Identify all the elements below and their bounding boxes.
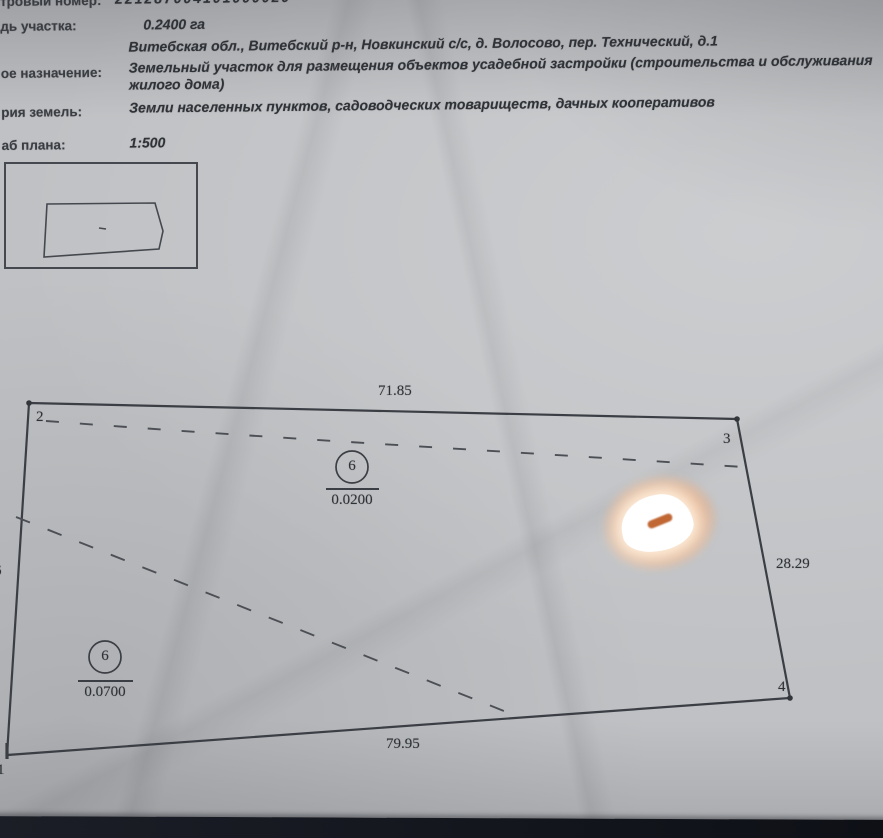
zone-a-code: 6 bbox=[344, 458, 360, 475]
corner-label-1: 1 bbox=[0, 762, 5, 779]
zone-b-code: 6 bbox=[97, 648, 113, 665]
photographed-land-plot-document: тровый номер: 221287004101000020 дь учас… bbox=[0, 0, 883, 838]
zone-a-area: 0.0200 bbox=[320, 492, 384, 509]
dimension-bottom: 79.95 bbox=[386, 736, 420, 753]
dimension-left-partial: 6 bbox=[0, 563, 2, 580]
table-edge bbox=[0, 816, 883, 838]
plan-drawing bbox=[0, 0, 883, 838]
corner-label-3: 3 bbox=[723, 431, 731, 448]
corner-label-2: 2 bbox=[36, 409, 44, 426]
zone-b-area: 0.0700 bbox=[73, 684, 137, 701]
corner-label-4: 4 bbox=[778, 679, 786, 696]
dimension-top: 71.85 bbox=[378, 383, 412, 400]
zone-code-marks bbox=[78, 451, 379, 681]
location-sketch bbox=[5, 163, 197, 268]
dimension-right: 28.29 bbox=[776, 556, 810, 573]
